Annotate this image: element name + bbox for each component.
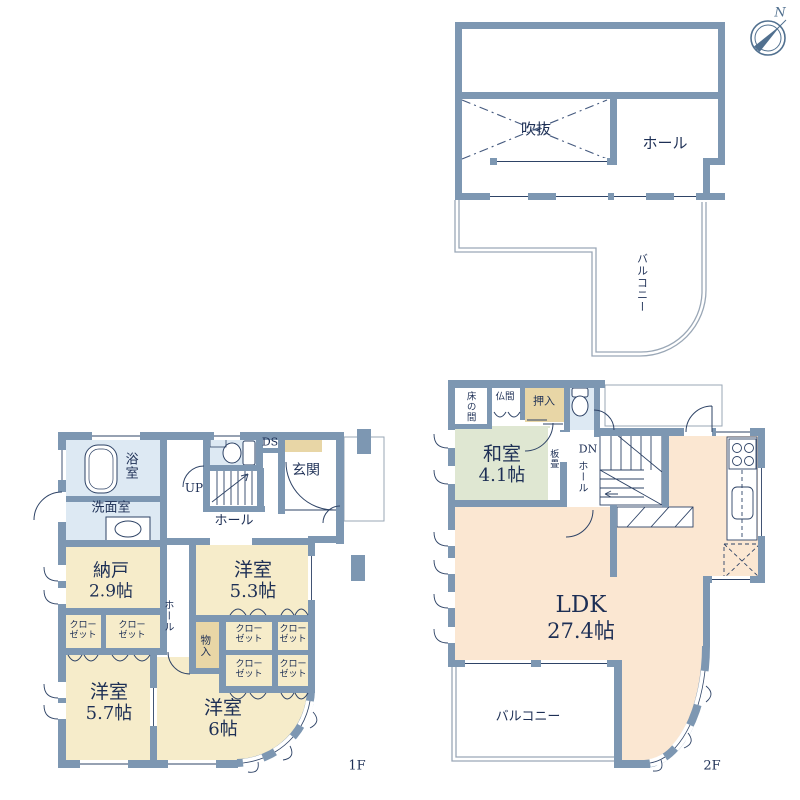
room-label-balcony-upper: バルコニー (635, 253, 648, 313)
room-label-hall1f-v: ホール (161, 600, 173, 633)
closet-label-5: クローゼット (233, 660, 265, 681)
closet-label-6: クローゼット (277, 660, 309, 681)
room-label-hall2f-v: ホール (575, 461, 587, 494)
compass (751, 20, 786, 55)
floor-plan: { "colors": { "wall": "#7d97b2", "line":… (0, 0, 800, 800)
storage-size: 2.9帖 (89, 582, 133, 602)
kitchen-counter (727, 437, 757, 540)
room-label-tokonoma: 床の間 (464, 391, 475, 423)
stair-railing (617, 507, 693, 527)
room-label-itatami: 板畳 (548, 449, 559, 469)
room-label-oshiire: 押入 (533, 396, 555, 409)
room-label-west53: 洋室 5.3帖 (230, 559, 277, 603)
room-label-ds: DS (262, 437, 278, 450)
room-label-butsuma: 仏間 (495, 391, 514, 402)
closet-label-1: クローゼット (67, 621, 99, 642)
room-label-ldk: LDK 27.4帖 (547, 592, 615, 644)
room-label-washitsu: 和室 4.1帖 (479, 443, 526, 487)
plan-drawing (0, 0, 800, 800)
storage-name: 納戸 (89, 560, 133, 581)
floor2-label: 2F (703, 758, 720, 773)
west57-size: 5.7帖 (86, 704, 133, 725)
room-label-hall2f-upper: ホール (642, 135, 687, 153)
closet-label-3: クローゼット (233, 625, 265, 646)
room-label-west57: 洋室 5.7帖 (86, 681, 133, 725)
compass-north-label: N (774, 5, 785, 20)
west57-name: 洋室 (86, 681, 133, 703)
bathtub (85, 445, 117, 493)
west6-name: 洋室 (204, 697, 242, 719)
closet-label-2: クローゼット (116, 621, 148, 642)
ldk-size: 27.4帖 (547, 619, 615, 644)
stairs-down-label: DN (579, 444, 597, 457)
room-label-balcony-lower: バルコニー (496, 709, 561, 724)
room-label-monoire: 物入 (199, 635, 211, 658)
washitsu-size: 4.1帖 (479, 466, 526, 487)
room-label-washroom: 洗面室 (91, 500, 130, 515)
west53-name: 洋室 (230, 559, 277, 581)
roof-outline (605, 385, 722, 426)
toilet1f (243, 441, 255, 465)
room-label-storage: 納戸 2.9帖 (89, 560, 133, 601)
west53-size: 5.3帖 (230, 582, 277, 603)
ldk-name: LDK (547, 592, 615, 619)
stairs-up (212, 466, 252, 505)
stairs-up-label: UP (185, 481, 203, 495)
washitsu-name: 和室 (479, 443, 526, 465)
shoe-cabinet (284, 438, 322, 452)
stairs-down (600, 434, 662, 505)
floor1-label: 1F (348, 758, 365, 773)
closet-label-4: クローゼット (277, 625, 309, 646)
room-label-void: 吹抜 (521, 121, 551, 139)
west6-size: 6帖 (204, 720, 242, 741)
washroom-ext-door (34, 492, 62, 520)
room-label-west6: 洋室 6帖 (204, 697, 242, 741)
room-label-entrance: 玄関 (292, 463, 320, 480)
room-label-bath: 浴室 (122, 452, 137, 480)
room-label-hall1f: ホール (214, 513, 253, 528)
